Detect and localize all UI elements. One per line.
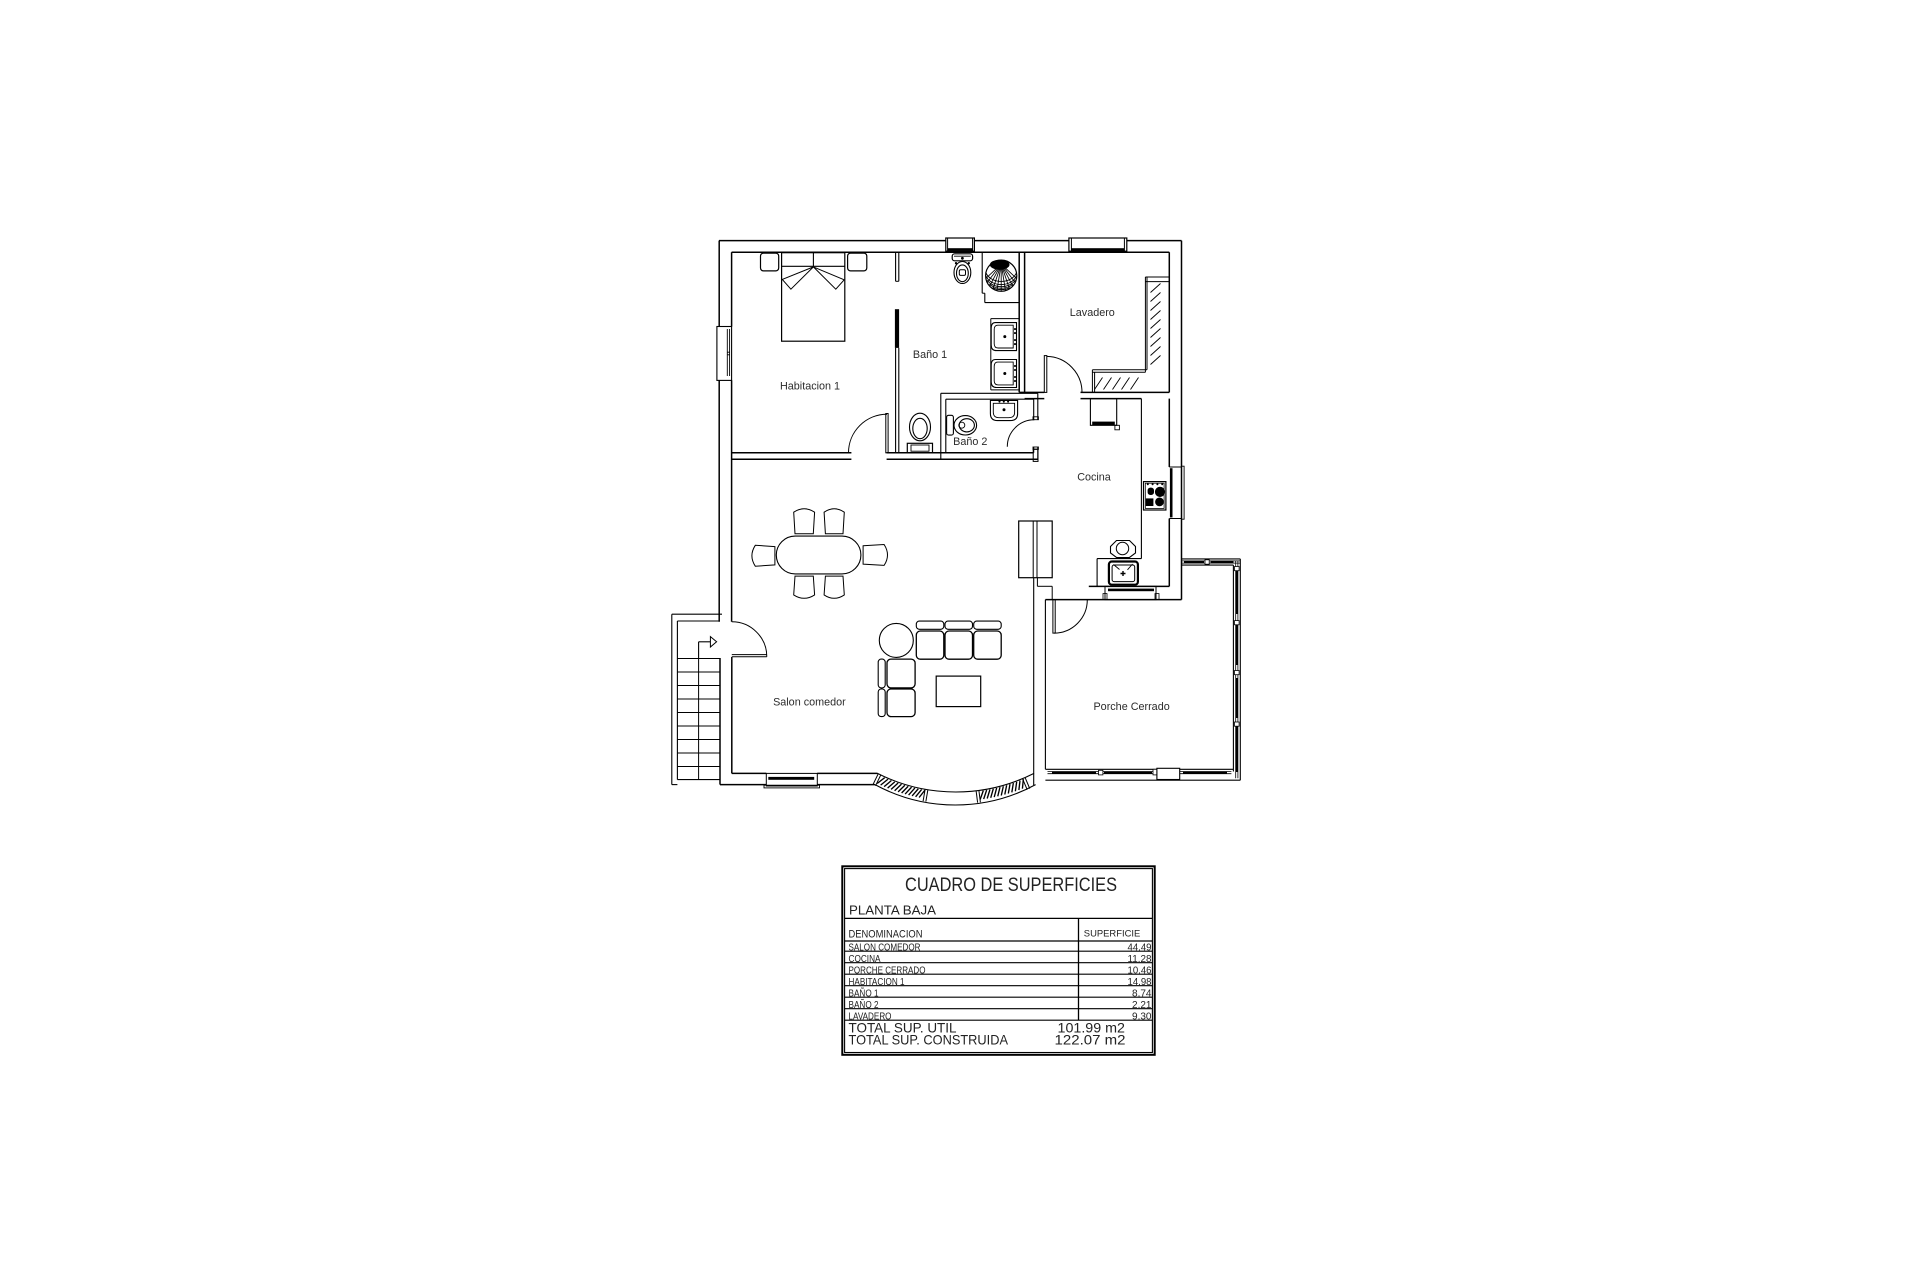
svg-text:SUPERFICIE: SUPERFICIE xyxy=(1084,928,1141,938)
svg-text:Porche Cerrado: Porche Cerrado xyxy=(1093,701,1169,713)
svg-text:11.28: 11.28 xyxy=(1128,954,1152,965)
svg-text:14.98: 14.98 xyxy=(1128,977,1152,988)
svg-text:CUADRO DE SUPERFICIES: CUADRO DE SUPERFICIES xyxy=(905,875,1117,896)
svg-text:Salon comedor: Salon comedor xyxy=(773,697,846,709)
svg-text:10.46: 10.46 xyxy=(1128,966,1152,977)
svg-text:Cocina: Cocina xyxy=(1077,471,1111,483)
svg-text:Habitacion 1: Habitacion 1 xyxy=(780,381,840,393)
svg-text:Baño 2: Baño 2 xyxy=(953,436,987,448)
svg-text:DENOMINACION: DENOMINACION xyxy=(849,928,923,940)
svg-text:COCINA: COCINA xyxy=(849,953,881,965)
svg-text:2.21: 2.21 xyxy=(1132,1000,1152,1011)
svg-text:TOTAL SUP. CONSTRUIDA: TOTAL SUP. CONSTRUIDA xyxy=(849,1033,1009,1048)
svg-text:PORCHE CERRADO: PORCHE CERRADO xyxy=(849,965,926,977)
svg-text:Baño 1: Baño 1 xyxy=(913,349,947,361)
svg-text:SALON COMEDOR: SALON COMEDOR xyxy=(849,942,921,954)
svg-text:HABITACION 1: HABITACION 1 xyxy=(849,976,905,988)
svg-text:BAÑO 2: BAÑO 2 xyxy=(849,998,879,1011)
svg-text:122.07 m2: 122.07 m2 xyxy=(1055,1033,1126,1048)
svg-text:44.49: 44.49 xyxy=(1128,943,1152,954)
svg-text:8.74: 8.74 xyxy=(1132,989,1152,1000)
svg-text:BAÑO 1: BAÑO 1 xyxy=(849,987,879,1000)
svg-text:PLANTA BAJA: PLANTA BAJA xyxy=(849,902,936,917)
svg-text:Lavadero: Lavadero xyxy=(1070,307,1115,319)
svg-text:9.30: 9.30 xyxy=(1132,1012,1152,1023)
